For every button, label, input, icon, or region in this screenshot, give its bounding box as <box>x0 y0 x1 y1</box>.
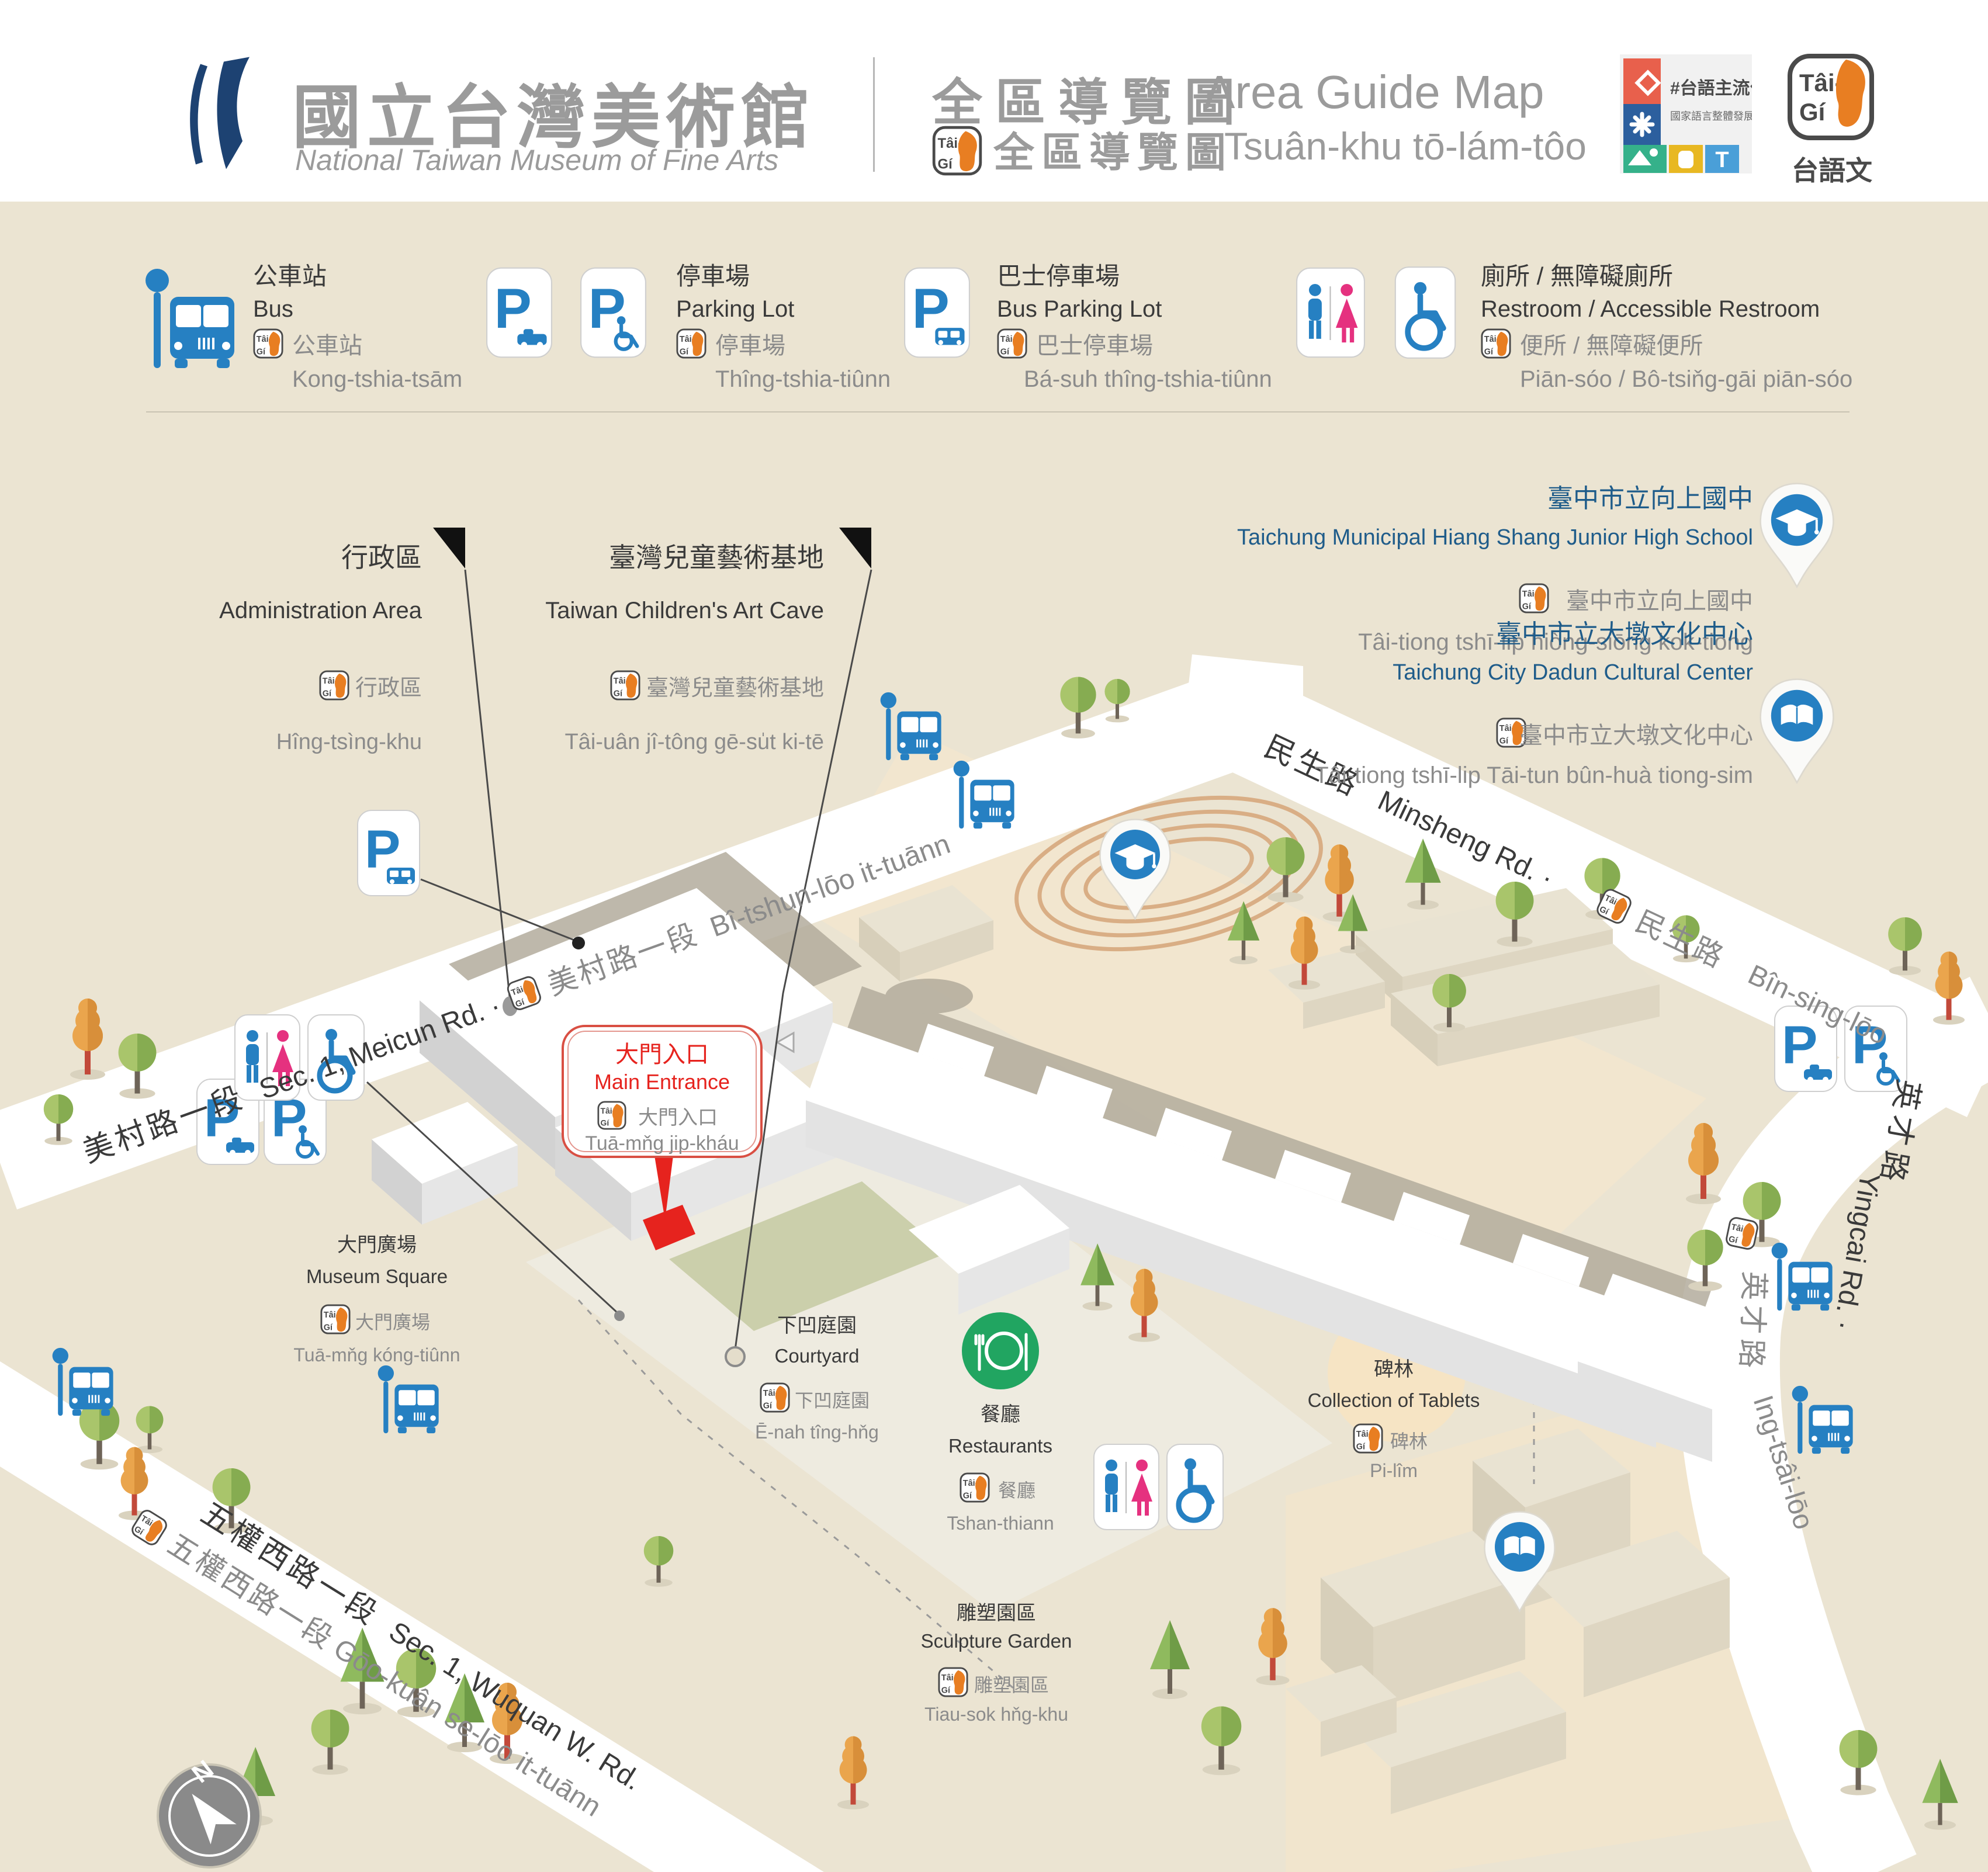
badge-campaign-line2: 國家語言整體發展方案 <box>1670 110 1752 122</box>
restaurants-en: Restaurants <box>948 1435 1052 1457</box>
restroom-icon <box>1297 268 1364 357</box>
taigi-campaign-badge: T #台語主流化 國家語言整體發展方案 <box>1620 54 1752 174</box>
legend-bus-parking-en: Bus Parking Lot <box>997 296 1162 322</box>
sculpture-cjk2: 雕塑園區 <box>974 1675 1049 1696</box>
accessible-restroom-icon <box>1395 267 1455 358</box>
legend-bus-cjk2: 公車站 <box>292 333 362 359</box>
courtyard-cjk: 下凹庭園 <box>777 1315 857 1337</box>
courtyard-cjk2: 下凹庭園 <box>795 1390 870 1411</box>
restaurant-icon <box>962 1312 1039 1389</box>
artcave-line-dot <box>726 1347 744 1366</box>
yucai-cjk2: 英才路 <box>1734 1271 1771 1374</box>
entrance-cjk2: 大門入口 <box>638 1107 718 1129</box>
courtyard-rom: Ē-nah tîng-hňg <box>755 1422 879 1443</box>
bus-parking-sign-icon <box>358 810 420 896</box>
admin-en: Administration Area <box>219 598 422 623</box>
artcave-cjk2: 臺灣兒童藝術基地 <box>646 676 824 701</box>
dadun-en: Taichung City Dadun Cultural Center <box>1393 660 1753 685</box>
school-cjk2: 臺中市立向上國中 <box>1566 588 1753 614</box>
museum-name-en: National Taiwan Museum of Fine Arts <box>295 143 778 177</box>
area-map: Tâi- Gí <box>0 202 1988 1872</box>
school-cjk: 臺中市立向上國中 <box>1547 484 1753 513</box>
dadun-cjk: 臺中市立大墩文化中心 <box>1496 620 1753 649</box>
parking-sign-icon <box>487 268 552 358</box>
badge-campaign-line1: #台語主流化 <box>1670 78 1752 98</box>
tablets-en: Collection of Tablets <box>1308 1389 1480 1411</box>
legend-bus-rom: Kong-tshia-tsām <box>292 366 462 392</box>
taigi-logo-line2: Gí <box>1799 98 1826 126</box>
legend-bus-parking-cjk: 巴士停車場 <box>997 262 1120 290</box>
legend-parking-rom: Thîng-tshia-tiûnn <box>715 366 891 392</box>
legend-bus-parking-cjk2: 巴士停車場 <box>1036 333 1153 359</box>
page-subtitle-cjk: 全區導覽圖 <box>993 120 1233 179</box>
artcave-cjk: 臺灣兒童藝術基地 <box>609 542 824 573</box>
artcave-rom: Tâi-uân jî-tông gē-su̍t ki-tē <box>564 730 824 754</box>
admin-cjk2: 行政區 <box>355 676 422 701</box>
admin-cjk: 行政區 <box>341 542 422 573</box>
museum-logo-mark-icon <box>184 56 289 175</box>
legend-parking-en: Parking Lot <box>676 296 794 322</box>
square-cjk2: 大門廣場 <box>355 1312 430 1333</box>
legend-restroom-en: Restroom / Accessible Restroom <box>1481 296 1820 322</box>
pbus-line-dot <box>572 937 585 949</box>
header: 國立台灣美術館 National Taiwan Museum of Fine A… <box>0 0 1988 202</box>
taigi-logo-caption: 台語文 <box>1792 155 1872 186</box>
tablets-rom: Pi-lîm <box>1370 1460 1418 1481</box>
courtyard-en: Courtyard <box>775 1345 860 1367</box>
tablets-cjk2: 碑林 <box>1390 1431 1428 1452</box>
admin-rom: Hîng-tsìng-khu <box>276 730 422 754</box>
legend-parking-cjk: 停車場 <box>676 262 750 290</box>
dadun-cjk2: 臺中市立大墩文化中心 <box>1519 723 1753 748</box>
header-divider <box>873 57 875 172</box>
sculpture-en: Sculpture Garden <box>921 1630 1072 1652</box>
legend-bus-en: Bus <box>253 296 293 322</box>
school-en: Taichung Municipal Hiang Shang Junior Hi… <box>1237 525 1753 550</box>
accessible-restroom-icon <box>1167 1444 1223 1530</box>
square-cjk: 大門廣場 <box>337 1234 417 1256</box>
legend-bus-cjk: 公車站 <box>253 262 327 290</box>
legend-restroom-rom: Piān-sóo / Bô-tsiňg-gāi piān-sóo <box>1520 366 1852 392</box>
bus-parking-sign-icon <box>905 268 969 358</box>
legend-restroom-cjk: 廁所 / 無障礙廁所 <box>1481 262 1673 290</box>
restaurants-cjk2: 餐廳 <box>998 1480 1035 1501</box>
legend-parking-cjk2: 停車場 <box>715 333 785 359</box>
taigi-logo-badge: Tâi- Gí 台語文 <box>1785 53 1879 196</box>
legend-restroom-cjk2: 便所 / 無障礙便所 <box>1520 333 1703 359</box>
badge-tile-t: T <box>1715 148 1729 172</box>
legend-bus-parking-rom: Bá-suh thîng-tshia-tiûnn <box>1024 366 1272 392</box>
entrance-en: Main Entrance <box>594 1070 730 1094</box>
taigi-chip-icon <box>932 126 982 176</box>
accessible-parking-sign-icon <box>581 268 646 358</box>
dadun-rom: Tâi-tiong tshī-lip Tāi-tun bûn-huà tiong… <box>1314 762 1753 788</box>
sculpture-rom: Tiau-sok hňg-khu <box>924 1704 1068 1725</box>
restaurants-cjk: 餐廳 <box>981 1403 1020 1426</box>
page-subtitle-rom: Tsuân-khu tō-lám-tôo <box>1224 124 1587 168</box>
restaurants-rom: Tshan-thiann <box>947 1513 1054 1534</box>
square-en: Museum Square <box>306 1266 448 1287</box>
page-title-en: Area Guide Map <box>1204 65 1544 119</box>
sculpture-cjk: 雕塑園區 <box>957 1602 1036 1624</box>
entrance-cjk: 大門入口 <box>615 1042 709 1067</box>
square-rom: Tuā-mňg kóng-tiûnn <box>293 1344 460 1365</box>
entrance-rom: Tuā-mňg jip-kháu <box>585 1132 739 1155</box>
restroom-icon <box>1094 1444 1159 1530</box>
artcave-en: Taiwan Children's Art Cave <box>545 598 824 623</box>
tablets-cjk: 碑林 <box>1374 1358 1414 1381</box>
restroom-line-dot <box>614 1311 625 1321</box>
area-guide-map-poster: 國立台灣美術館 National Taiwan Museum of Fine A… <box>0 0 1988 1872</box>
